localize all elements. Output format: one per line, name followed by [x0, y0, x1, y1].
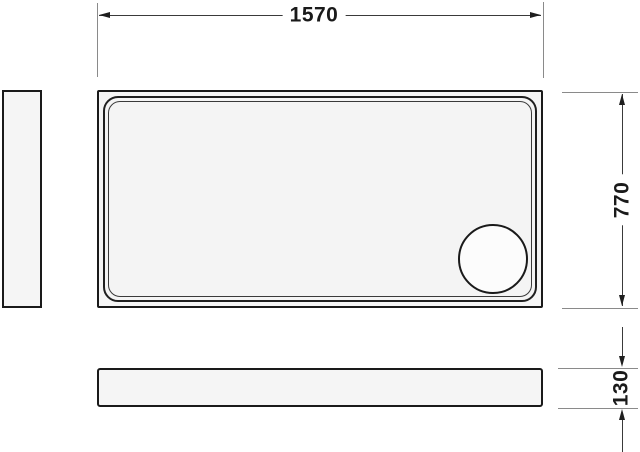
- side-view-panel: [2, 90, 42, 308]
- depth-extension-line-bottom: [562, 308, 638, 309]
- height-dimension-label: 130: [611, 363, 632, 414]
- width-arrow-left: [99, 12, 110, 18]
- height-leader-line-bottom: [622, 420, 623, 452]
- width-extension-line-right: [543, 2, 544, 78]
- depth-extension-line-top: [562, 92, 638, 93]
- depth-arrow-down: [619, 295, 625, 306]
- width-dimension-label: 1570: [283, 5, 346, 26]
- front-view-panel: [97, 368, 543, 407]
- depth-dimension-label: 770: [612, 175, 633, 226]
- depth-arrow-up: [619, 94, 625, 105]
- drain-circle: [458, 224, 528, 294]
- height-leader-line-top: [622, 327, 623, 357]
- technical-drawing-canvas: 1570 770 130: [0, 0, 640, 452]
- width-arrow-right: [530, 12, 541, 18]
- width-extension-line-left: [97, 3, 98, 77]
